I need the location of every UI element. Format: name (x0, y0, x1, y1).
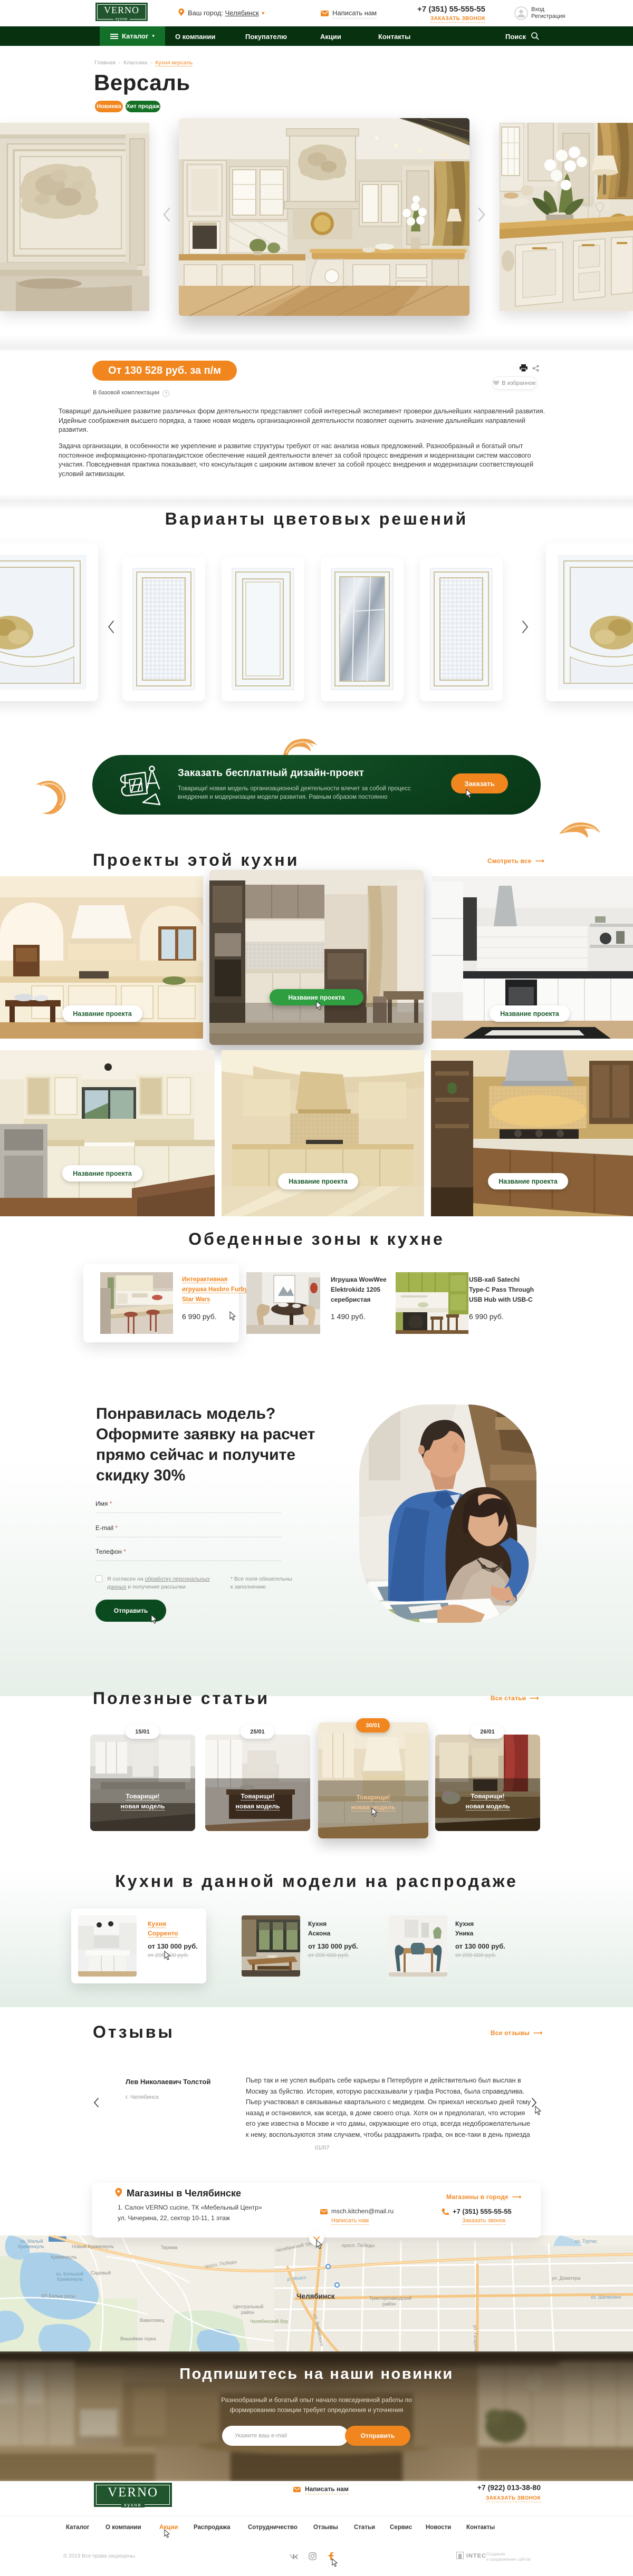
svg-text:оз. Большой: оз. Большой (56, 2271, 83, 2277)
svg-text:КП Белые росы: КП Белые росы (41, 2293, 75, 2299)
svg-text:Челябинский бор: Челябинский бор (250, 2319, 288, 2324)
svg-text:оз. Шелюгино: оз. Шелюгино (591, 2294, 621, 2300)
svg-text:район: район (241, 2310, 254, 2315)
svg-text:Кременкуль: Кременкуль (51, 2254, 77, 2260)
svg-text:район: район (382, 2301, 396, 2307)
svg-text:Новый Кременкуль: Новый Кременкуль (72, 2244, 114, 2249)
svg-text:ул. Доватора: ул. Доватора (552, 2275, 580, 2281)
svg-text:Терема: Терема (161, 2245, 177, 2250)
svg-text:Кременкуль: Кременкуль (18, 2244, 44, 2249)
svg-text:ул. Гагарина: ул. Гагарина (473, 2325, 479, 2351)
svg-text:Вишнёвая горка: Вишнёвая горка (120, 2336, 156, 2341)
svg-text:Челябинск: Челябинск (296, 2292, 335, 2300)
svg-text:просп. Победы: просп. Победы (342, 2243, 375, 2248)
svg-text:Центральный: Центральный (233, 2304, 263, 2309)
svg-text:Садовый: Садовый (91, 2270, 111, 2275)
svg-text:оз. Туртас: оз. Туртас (575, 2239, 597, 2244)
svg-text:Вавиловец: Вавиловец (140, 2318, 164, 2323)
svg-text:Кременкуль: Кременкуль (57, 2277, 83, 2282)
svg-text:Тракторозаводский: Тракторозаводский (369, 2296, 411, 2301)
svg-text:оз. Малый: оз. Малый (20, 2239, 43, 2244)
